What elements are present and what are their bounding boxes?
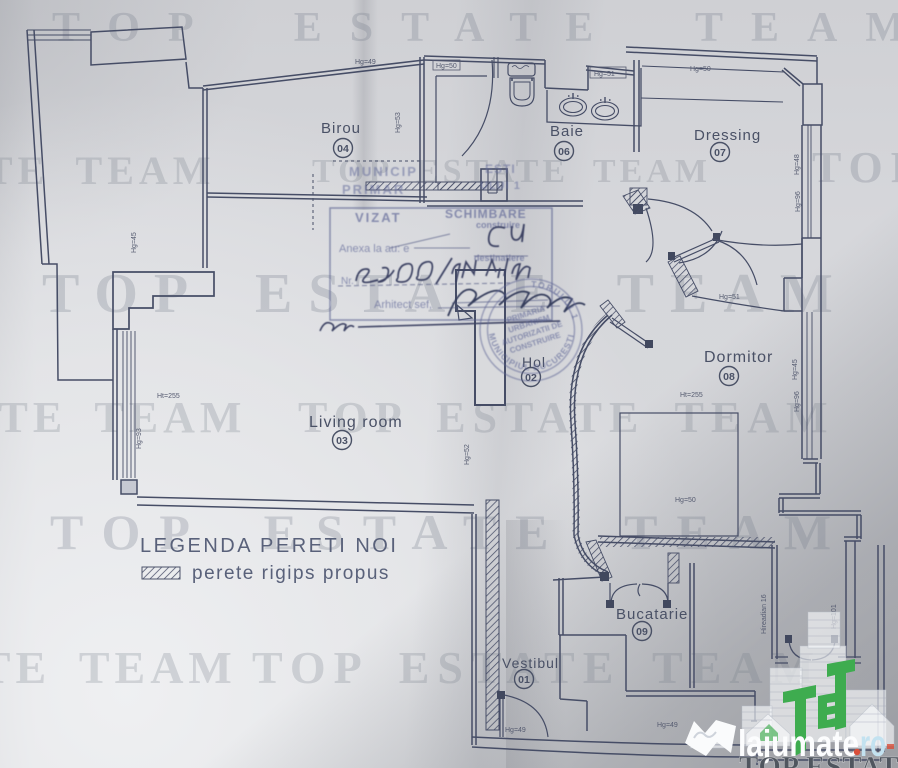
svg-text:09: 09 xyxy=(636,626,648,638)
svg-text:ULUI 1: ULUI 1 xyxy=(480,180,521,192)
svg-text:perete rigips propus: perete rigips propus xyxy=(192,563,390,584)
svg-text:LEGENDA PERETI NOI: LEGENDA PERETI NOI xyxy=(140,535,398,557)
svg-text:destinatiere: destinatiere xyxy=(474,253,525,263)
svg-text:Bucatarie: Bucatarie xyxy=(616,606,688,623)
svg-text:Hg=50: Hg=50 xyxy=(690,66,711,73)
svg-text:MUNICIP: MUNICIP xyxy=(349,164,418,179)
svg-text:Hg=53: Hg=53 xyxy=(395,112,402,133)
svg-text:Dressing: Dressing xyxy=(694,127,761,144)
svg-text:06: 06 xyxy=(558,146,570,158)
svg-text:ESTI: ESTI xyxy=(485,162,516,176)
svg-text:SCHIMBARE: SCHIMBARE xyxy=(445,207,527,221)
svg-text:Hg=48: Hg=48 xyxy=(794,154,801,175)
svg-text:Dormitor: Dormitor xyxy=(704,349,773,366)
svg-text:Ht=255: Ht=255 xyxy=(680,392,703,399)
svg-text:Hg=50: Hg=50 xyxy=(436,63,457,70)
svg-text:Arhitect sef,: Arhitect sef, xyxy=(374,299,432,311)
svg-text:construire: construire xyxy=(476,220,520,230)
svg-text:Hg=96: Hg=96 xyxy=(794,391,801,412)
svg-text:Vestibul: Vestibul xyxy=(502,655,559,671)
svg-text:Ht=255: Ht=255 xyxy=(157,393,180,400)
svg-text:01: 01 xyxy=(518,674,530,686)
svg-text:Baie: Baie xyxy=(550,123,584,140)
svg-text:08: 08 xyxy=(723,371,735,383)
svg-text:PRIMAR: PRIMAR xyxy=(342,182,405,197)
svg-text:Hg=49: Hg=49 xyxy=(657,722,678,729)
svg-text:Hg=51: Hg=51 xyxy=(719,294,740,301)
svg-text:Hg=50: Hg=50 xyxy=(675,497,696,504)
svg-text:Hg=45: Hg=45 xyxy=(131,232,138,253)
svg-text:Hg=93: Hg=93 xyxy=(136,428,143,449)
svg-text:03: 03 xyxy=(336,435,348,447)
svg-text:VIZAT: VIZAT xyxy=(355,210,402,225)
svg-text:Hg=52: Hg=52 xyxy=(464,444,471,465)
svg-text:Living room: Living room xyxy=(309,414,403,431)
svg-text:Hg=49: Hg=49 xyxy=(355,59,376,66)
svg-text:Hireadian 16: Hireadian 16 xyxy=(761,594,768,634)
svg-text:Hg=49: Hg=49 xyxy=(505,727,526,734)
svg-text:Anexa la au: e: Anexa la au: e xyxy=(339,243,409,255)
svg-text:Hg=45: Hg=45 xyxy=(792,359,799,380)
svg-text:04: 04 xyxy=(337,143,349,155)
svg-text:07: 07 xyxy=(714,147,726,159)
svg-text:Hg=51: Hg=51 xyxy=(594,71,615,78)
svg-text:Hg=96: Hg=96 xyxy=(795,191,802,212)
svg-text:Birou: Birou xyxy=(321,120,361,137)
svg-text:TOP ESTATE TEAM: TOP ESTATE TEAM xyxy=(739,751,898,768)
